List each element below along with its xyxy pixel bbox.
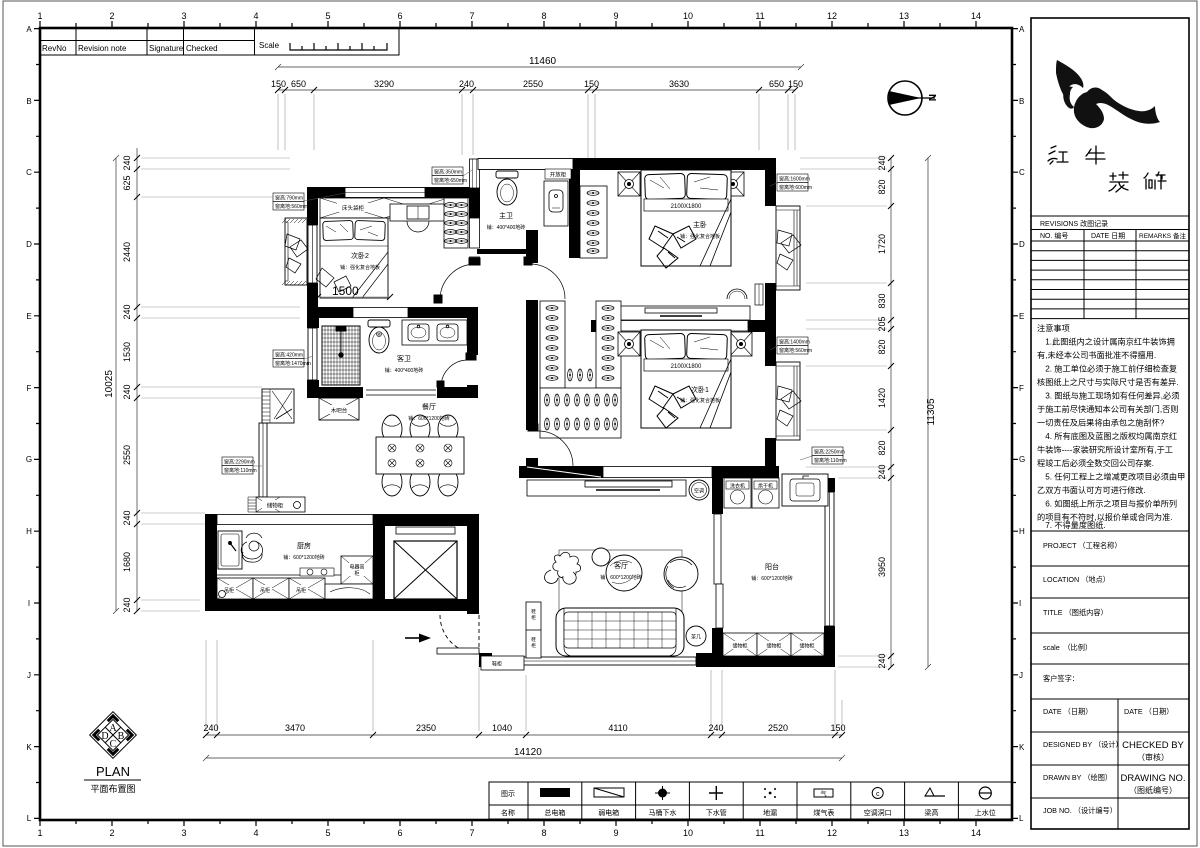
svg-text:150: 150	[830, 723, 845, 733]
svg-text:4: 4	[253, 11, 258, 21]
svg-text:窗离地:110mm: 窗离地:110mm	[814, 457, 847, 464]
svg-text:LOCATION （地点）: LOCATION （地点）	[1043, 575, 1110, 584]
svg-text:E: E	[26, 312, 31, 321]
svg-text:鞋: 鞋	[531, 608, 536, 615]
svg-text:B: B	[118, 731, 125, 742]
svg-text:有,未经本公司书面批准不得擅用.: 有,未经本公司书面批准不得擅用.	[1037, 350, 1156, 360]
svg-text:13: 13	[899, 828, 909, 838]
svg-text:N: N	[926, 94, 937, 101]
svg-text:窗高:350mm: 窗高:350mm	[434, 169, 462, 176]
svg-text:牛装饰----家装研究所设计室所有,于工: 牛装饰----家装研究所设计室所有,于工	[1037, 445, 1173, 455]
svg-text:1040: 1040	[492, 723, 512, 733]
svg-text:主卫: 主卫	[499, 211, 513, 220]
svg-text:14120: 14120	[514, 747, 542, 758]
svg-text:10: 10	[683, 11, 693, 21]
svg-text:弱电箱: 弱电箱	[598, 808, 619, 817]
svg-text:625: 625	[122, 175, 132, 190]
svg-text:马桶下水: 马桶下水	[649, 808, 677, 817]
svg-text:储物柜: 储物柜	[799, 643, 814, 650]
svg-text:B: B	[1019, 97, 1024, 106]
svg-text:Revision note: Revision note	[78, 44, 127, 53]
svg-text:2100X1800: 2100X1800	[671, 204, 702, 210]
svg-text:空调洞口: 空调洞口	[864, 808, 892, 817]
svg-text:12: 12	[827, 11, 837, 21]
svg-text:150: 150	[788, 79, 803, 89]
svg-text:TITLE （图纸内容）: TITLE （图纸内容）	[1043, 608, 1108, 617]
svg-text:柜: 柜	[354, 570, 359, 577]
svg-text:铺：强化复合地板: 铺：强化复合地板	[340, 264, 380, 271]
svg-text:2520: 2520	[768, 723, 788, 733]
svg-text:3290: 3290	[374, 79, 394, 89]
svg-text:REMARKS 备注: REMARKS 备注	[1139, 231, 1186, 240]
svg-text:2: 2	[109, 828, 114, 838]
svg-text:窗高:2290mm: 窗高:2290mm	[224, 459, 255, 466]
svg-text:G: G	[26, 455, 32, 464]
svg-text:鞋: 鞋	[531, 636, 536, 643]
svg-text:650: 650	[291, 79, 306, 89]
svg-text:3950: 3950	[877, 557, 887, 577]
svg-text:客厅: 客厅	[614, 561, 628, 570]
svg-text:次卧1: 次卧1	[691, 385, 709, 394]
svg-text:平面布置图: 平面布置图	[90, 783, 135, 794]
svg-text:240: 240	[708, 723, 723, 733]
svg-text:Checked: Checked	[186, 44, 218, 53]
svg-text:铺：600*1200地砖: 铺：600*1200地砖	[283, 554, 324, 561]
svg-text:A: A	[109, 723, 117, 734]
svg-text:DATE （日期）: DATE （日期）	[1124, 707, 1173, 716]
svg-text:2100X1800: 2100X1800	[671, 364, 702, 370]
svg-text:c: c	[876, 791, 880, 798]
svg-text:厨房: 厨房	[297, 541, 311, 550]
svg-text:830: 830	[877, 293, 887, 308]
svg-text:240: 240	[122, 304, 132, 319]
svg-text:240: 240	[203, 723, 218, 733]
svg-text:CHECKED BY: CHECKED BY	[1122, 740, 1184, 751]
svg-text:气: 气	[820, 790, 826, 798]
svg-text:3. 图纸与施工现场如有任何差异,必须: 3. 图纸与施工现场如有任何差异,必须	[1037, 391, 1179, 401]
svg-text:C: C	[110, 739, 117, 750]
svg-text:鞋柜: 鞋柜	[492, 661, 502, 668]
svg-text:8: 8	[541, 828, 546, 838]
svg-text:窗离地:1470mm: 窗离地:1470mm	[275, 360, 311, 367]
svg-text:H: H	[26, 527, 32, 536]
svg-text:12: 12	[827, 828, 837, 838]
svg-text:窗高:1400mm: 窗高:1400mm	[779, 339, 810, 346]
svg-text:铺：400*400地砖: 铺：400*400地砖	[385, 367, 424, 374]
svg-text:240: 240	[877, 464, 887, 479]
svg-text:NO. 编号: NO. 编号	[1040, 231, 1068, 240]
svg-text:1: 1	[37, 11, 42, 21]
svg-text:铺：400*400地砖: 铺：400*400地砖	[487, 224, 526, 231]
svg-text:5. 任何工程上之增减更改项目必须由甲: 5. 任何工程上之增减更改项目必须由甲	[1037, 472, 1185, 482]
svg-text:J: J	[27, 671, 31, 680]
svg-text:梁高: 梁高	[925, 808, 939, 817]
svg-text:窗离地:600mm: 窗离地:600mm	[779, 184, 812, 191]
svg-text:6: 6	[397, 11, 402, 21]
svg-text:储物柜: 储物柜	[732, 643, 747, 650]
svg-text:9: 9	[613, 828, 618, 838]
svg-text:K: K	[26, 743, 32, 752]
svg-text:240: 240	[122, 597, 132, 612]
svg-text:2550: 2550	[523, 79, 543, 89]
svg-text:烘干机: 烘干机	[758, 483, 773, 490]
svg-text:5: 5	[325, 828, 330, 838]
svg-text:窗高:2250mm: 窗高:2250mm	[814, 449, 845, 456]
svg-text:I: I	[28, 599, 30, 608]
svg-text:650: 650	[769, 79, 784, 89]
svg-text:1680: 1680	[122, 552, 132, 572]
svg-text:A: A	[1019, 25, 1025, 34]
svg-text:10: 10	[683, 828, 693, 838]
svg-text:阳台: 阳台	[765, 562, 779, 571]
svg-text:F: F	[1019, 384, 1024, 393]
svg-text:REVISIONS 改图记录: REVISIONS 改图记录	[1040, 219, 1108, 228]
svg-text:K: K	[1019, 743, 1025, 752]
svg-text:1: 1	[37, 828, 42, 838]
svg-text:14: 14	[971, 11, 981, 21]
svg-text:5: 5	[325, 11, 330, 21]
svg-text:8: 8	[541, 11, 546, 21]
svg-text:PLAN: PLAN	[96, 764, 130, 779]
svg-text:上水位: 上水位	[975, 808, 996, 817]
svg-text:DATE 日期: DATE 日期	[1091, 232, 1125, 240]
svg-text:窗离地:560mm: 窗离地:560mm	[779, 347, 812, 354]
svg-text:洗衣机: 洗衣机	[730, 483, 745, 490]
svg-text:JOB NO. （设计编号）: JOB NO. （设计编号）	[1043, 806, 1117, 815]
svg-text:空调: 空调	[694, 488, 704, 495]
svg-text:核图纸上之尺寸与实际尺寸是否有差异.: 核图纸上之尺寸与实际尺寸是否有差异.	[1037, 377, 1178, 387]
svg-text:F: F	[27, 384, 32, 393]
svg-text:10025: 10025	[104, 370, 115, 398]
svg-text:1530: 1530	[122, 342, 132, 362]
svg-text:B: B	[26, 97, 31, 106]
svg-text:1.此图纸内之设计属南京红牛装饰拥: 1.此图纸内之设计属南京红牛装饰拥	[1037, 337, 1175, 347]
svg-text:H: H	[1019, 527, 1025, 536]
svg-text:铺：600*1200地砖: 铺：600*1200地砖	[600, 574, 641, 581]
svg-text:240: 240	[877, 155, 887, 170]
svg-text:客卫: 客卫	[397, 354, 411, 363]
svg-text:铺：600*1200地砖: 铺：600*1200地砖	[408, 415, 449, 422]
svg-text:Signature: Signature	[149, 44, 184, 53]
svg-text:820: 820	[877, 440, 887, 455]
svg-text:G: G	[1019, 455, 1025, 464]
svg-text:煤气表: 煤气表	[813, 808, 834, 817]
svg-text:窗离地:110mm: 窗离地:110mm	[224, 467, 257, 474]
svg-text:开放柜: 开放柜	[550, 171, 567, 179]
svg-text:scale （比例）: scale （比例）	[1043, 643, 1092, 652]
svg-text:铺：强化复合地板: 铺：强化复合地板	[680, 397, 720, 404]
svg-text:11: 11	[755, 11, 764, 21]
svg-text:木吧台: 木吧台	[331, 407, 348, 415]
svg-text:150: 150	[584, 79, 599, 89]
svg-text:205: 205	[877, 316, 887, 331]
svg-text:Scale: Scale	[259, 41, 280, 50]
svg-text:L: L	[27, 814, 32, 823]
svg-text:储物柜: 储物柜	[267, 502, 284, 510]
svg-text:3470: 3470	[285, 723, 305, 733]
svg-text:窗离地:650mm: 窗离地:650mm	[434, 177, 467, 184]
svg-text:240: 240	[877, 653, 887, 668]
svg-text:柜: 柜	[531, 642, 536, 649]
svg-text:2350: 2350	[416, 723, 436, 733]
svg-text:11: 11	[755, 828, 764, 838]
svg-text:4110: 4110	[608, 723, 627, 733]
svg-text:A: A	[26, 25, 32, 34]
svg-text:820: 820	[877, 339, 887, 354]
svg-text:铺：600*1200地砖: 铺：600*1200地砖	[751, 575, 792, 582]
svg-text:4. 所有底图及蓝图之版权均属南京红: 4. 所有底图及蓝图之版权均属南京红	[1037, 431, 1177, 441]
svg-text:1720: 1720	[877, 234, 887, 254]
svg-text:11460: 11460	[529, 56, 557, 67]
svg-text:地漏: 地漏	[763, 808, 777, 817]
svg-text:注意事项: 注意事项	[1037, 323, 1070, 333]
svg-text:240: 240	[122, 155, 132, 170]
svg-text:2550: 2550	[122, 445, 132, 465]
svg-text:程竣工后必须全数交回公司存案.: 程竣工后必须全数交回公司存案.	[1037, 458, 1154, 468]
svg-text:3: 3	[181, 828, 186, 838]
svg-text:（审核）: （审核）	[1137, 752, 1169, 762]
svg-text:L: L	[1019, 814, 1024, 823]
svg-text:2: 2	[109, 11, 114, 21]
svg-text:240: 240	[122, 510, 132, 525]
svg-text:次卧2: 次卧2	[351, 251, 369, 260]
svg-text:柜: 柜	[531, 614, 536, 621]
svg-text:DRAWING NO.: DRAWING NO.	[1120, 773, 1185, 784]
svg-text:E: E	[1019, 312, 1024, 321]
svg-text:DRAWN BY （绘图）: DRAWN BY （绘图）	[1043, 773, 1112, 782]
svg-text:PROJECT （工程名称）: PROJECT （工程名称）	[1043, 541, 1122, 550]
svg-text:D: D	[101, 731, 108, 742]
svg-text:2. 施工单位必须于施工前仔细检查复: 2. 施工单位必须于施工前仔细检查复	[1037, 364, 1177, 374]
svg-text:储物柜: 储物柜	[766, 643, 781, 650]
svg-text:D: D	[26, 240, 32, 249]
svg-text:吊柜: 吊柜	[224, 587, 234, 594]
svg-text:150: 150	[271, 79, 286, 89]
svg-text:11305: 11305	[926, 398, 937, 426]
svg-text:窗高:790mm: 窗高:790mm	[275, 195, 303, 202]
svg-text:6: 6	[397, 828, 402, 838]
svg-text:240: 240	[122, 384, 132, 399]
svg-text:C: C	[26, 168, 32, 177]
svg-text:一切责任及后果将由承包之施刮怀?: 一切责任及后果将由承包之施刮怀?	[1037, 418, 1165, 428]
svg-text:图示: 图示	[501, 790, 515, 798]
svg-text:名称: 名称	[501, 808, 515, 817]
svg-text:窗离地:560mm: 窗离地:560mm	[275, 203, 308, 210]
svg-text:7. 不得量度图纸.: 7. 不得量度图纸.	[1037, 520, 1106, 530]
svg-text:DATE （日期）: DATE （日期）	[1043, 707, 1092, 716]
svg-text:茶几: 茶几	[691, 634, 701, 641]
svg-text:1420: 1420	[877, 388, 887, 408]
svg-text:总电箱: 总电箱	[544, 808, 565, 817]
svg-text:铺：强化复合地板: 铺：强化复合地板	[680, 233, 720, 240]
svg-text:J: J	[1019, 671, 1023, 680]
svg-text:DESIGNED BY （设计）: DESIGNED BY （设计）	[1043, 740, 1123, 749]
svg-text:乙双方书面认可方可进行修改.: 乙双方书面认可方可进行修改.	[1037, 485, 1146, 495]
svg-text:1500: 1500	[332, 284, 359, 298]
svg-text:7: 7	[469, 828, 474, 838]
svg-text:7: 7	[469, 11, 474, 21]
svg-text:吊柜: 吊柜	[296, 587, 306, 594]
svg-text:I: I	[1019, 599, 1021, 608]
svg-text:240: 240	[459, 79, 474, 89]
svg-text:C: C	[1019, 168, 1025, 177]
svg-text:（图纸编号）: （图纸编号）	[1129, 785, 1177, 795]
svg-text:14: 14	[971, 828, 981, 838]
svg-text:2440: 2440	[122, 242, 132, 262]
svg-text:电器高: 电器高	[349, 564, 364, 571]
svg-text:餐厅: 餐厅	[422, 402, 436, 411]
svg-text:床头袋柜: 床头袋柜	[342, 204, 365, 212]
svg-text:3630: 3630	[669, 79, 689, 89]
svg-text:820: 820	[877, 179, 887, 194]
svg-text:窗高:420mm: 窗高:420mm	[275, 352, 303, 359]
svg-text:主卧: 主卧	[693, 220, 707, 229]
svg-text:窗高:1600mm: 窗高:1600mm	[779, 176, 810, 183]
svg-text:吊柜: 吊柜	[260, 587, 270, 594]
svg-text:下水管: 下水管	[706, 808, 727, 817]
svg-text:9: 9	[613, 11, 618, 21]
svg-text:6. 如图纸上所示之项目与报价单所列: 6. 如图纸上所示之项目与报价单所列	[1037, 499, 1177, 509]
svg-text:3: 3	[181, 11, 186, 21]
svg-text:客户签字：: 客户签字：	[1043, 674, 1079, 683]
svg-text:13: 13	[899, 11, 909, 21]
svg-text:D: D	[1019, 240, 1025, 249]
svg-text:4: 4	[253, 828, 258, 838]
svg-text:于施工前尽快通知本公司有关部门,否则: 于施工前尽快通知本公司有关部门,否则	[1037, 404, 1178, 414]
svg-text:RevNo: RevNo	[42, 44, 67, 53]
